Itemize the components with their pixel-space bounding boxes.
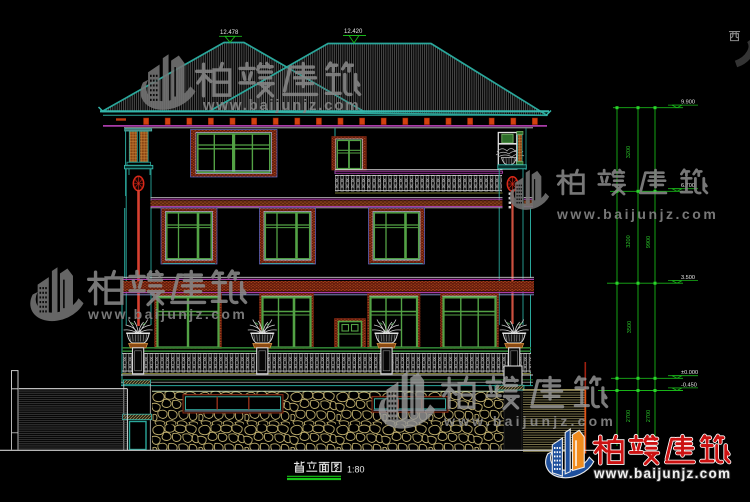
svg-text:3200: 3200 xyxy=(626,146,632,158)
svg-text:www.baijunjz.com: www.baijunjz.com xyxy=(556,206,717,222)
svg-text:3.500: 3.500 xyxy=(681,275,695,281)
svg-text:3200: 3200 xyxy=(626,235,632,247)
svg-text:9900: 9900 xyxy=(646,236,652,248)
svg-text:www.baijunjz.com: www.baijunjz.com xyxy=(87,306,246,322)
svg-text:±0.000: ±0.000 xyxy=(681,370,698,376)
svg-text:2700: 2700 xyxy=(646,410,652,422)
svg-text:www.baijunjz.com: www.baijunjz.com xyxy=(593,466,731,481)
svg-text:12.420: 12.420 xyxy=(344,29,363,35)
svg-text:12.478: 12.478 xyxy=(220,30,239,36)
svg-text:-0.450: -0.450 xyxy=(681,382,697,388)
svg-text:6.700: 6.700 xyxy=(681,183,695,189)
svg-text:www.baijunjz.com: www.baijunjz.com xyxy=(202,97,360,114)
svg-text:2700: 2700 xyxy=(626,410,632,422)
svg-text:9.900: 9.900 xyxy=(681,100,695,106)
svg-text:1:80: 1:80 xyxy=(347,465,365,475)
svg-text:3500: 3500 xyxy=(627,321,633,333)
